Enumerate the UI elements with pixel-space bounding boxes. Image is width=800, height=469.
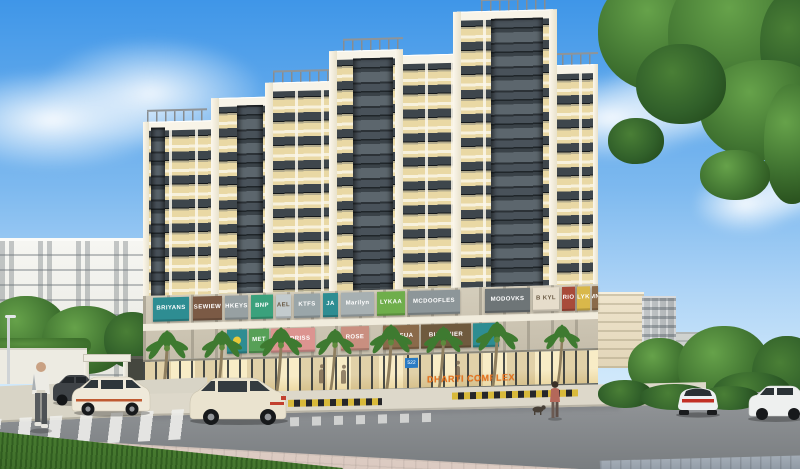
top bbox=[550, 388, 560, 402]
leg bbox=[552, 402, 555, 418]
shop-sign-label: JA bbox=[326, 301, 334, 307]
shop-sign-label: KTFS bbox=[298, 301, 315, 307]
roof-railing bbox=[273, 69, 329, 82]
shop-sign-label: MCDOOFLES bbox=[413, 298, 455, 305]
van-stripe bbox=[76, 399, 142, 402]
shop-sign-label: MODOVKS bbox=[491, 296, 525, 303]
building-slab bbox=[399, 54, 457, 290]
roof-railing bbox=[147, 108, 207, 122]
pilaster bbox=[549, 9, 557, 285]
wheel bbox=[756, 408, 768, 420]
pedestrian-woman bbox=[546, 380, 564, 422]
shop-sign-label: LYK bbox=[577, 294, 590, 300]
head bbox=[552, 381, 559, 388]
shop-sign-label: LYKAA bbox=[380, 299, 402, 306]
roof-railing bbox=[481, 0, 553, 11]
dog-leg bbox=[534, 411, 535, 415]
pedestrian-man bbox=[28, 360, 54, 434]
white-sports-car bbox=[672, 384, 724, 418]
white-car-right-edge bbox=[746, 382, 800, 424]
dog bbox=[530, 404, 546, 416]
lamppost bbox=[7, 318, 10, 384]
architectural-rendering: BRIYANS SEWIEW HKEYS BNP AEL KTFS JA Mar… bbox=[0, 0, 800, 469]
shoe bbox=[41, 424, 48, 428]
white-minivan bbox=[68, 372, 156, 418]
pilaster bbox=[395, 49, 403, 289]
shop-sign-label: HKEYS bbox=[225, 303, 248, 310]
shop-sign-label: B KYL bbox=[536, 295, 556, 302]
tire bbox=[679, 410, 689, 415]
shop-sign-label: RIO bbox=[563, 295, 575, 301]
pilaster bbox=[593, 64, 598, 284]
shop-sign-label: BNP bbox=[255, 303, 269, 309]
pilaster bbox=[329, 51, 337, 291]
overhanging-tree bbox=[700, 150, 770, 200]
leg bbox=[35, 393, 41, 423]
tire bbox=[707, 410, 717, 415]
entrance-gate bbox=[83, 354, 131, 362]
wheel bbox=[788, 408, 800, 420]
head bbox=[36, 362, 46, 372]
dog-head bbox=[541, 405, 545, 409]
main-building: BRIYANS SEWIEW HKEYS BNP AEL KTFS JA Mar… bbox=[143, 4, 598, 404]
car-taillight bbox=[682, 399, 714, 403]
cream-mpv-van bbox=[184, 374, 294, 426]
roof-railing bbox=[343, 37, 403, 51]
lamppost-head bbox=[5, 315, 16, 318]
building-slab bbox=[269, 81, 333, 293]
leg bbox=[556, 402, 559, 417]
leg bbox=[42, 393, 48, 425]
shoe bbox=[35, 422, 42, 426]
shop-sign-label: SEWIEW bbox=[194, 304, 221, 311]
pilaster bbox=[143, 122, 149, 296]
van-stripe bbox=[270, 402, 284, 405]
shop-sign-label: BRIYANS bbox=[156, 305, 185, 312]
dog-leg bbox=[540, 411, 541, 415]
shop-sign-label: MN bbox=[592, 294, 598, 300]
wheel bbox=[57, 395, 68, 406]
van-window bbox=[101, 380, 123, 389]
van-taillight bbox=[281, 396, 286, 400]
pilaster bbox=[211, 98, 219, 294]
pilaster bbox=[453, 12, 461, 288]
overhanging-tree bbox=[636, 44, 726, 124]
overhanging-tree bbox=[608, 118, 664, 164]
shop-sign-label: Marilyn bbox=[346, 300, 370, 307]
shop-sign-label: AEL bbox=[277, 302, 290, 308]
balcony-recess bbox=[353, 57, 393, 290]
pilaster bbox=[265, 83, 273, 293]
balcony-recess bbox=[491, 17, 543, 286]
car-window bbox=[777, 388, 793, 395]
balcony-recess bbox=[237, 105, 263, 294]
van-window bbox=[218, 381, 247, 392]
balcony-recess bbox=[151, 127, 165, 295]
building-slab bbox=[553, 64, 598, 285]
roof-railing bbox=[553, 52, 598, 65]
